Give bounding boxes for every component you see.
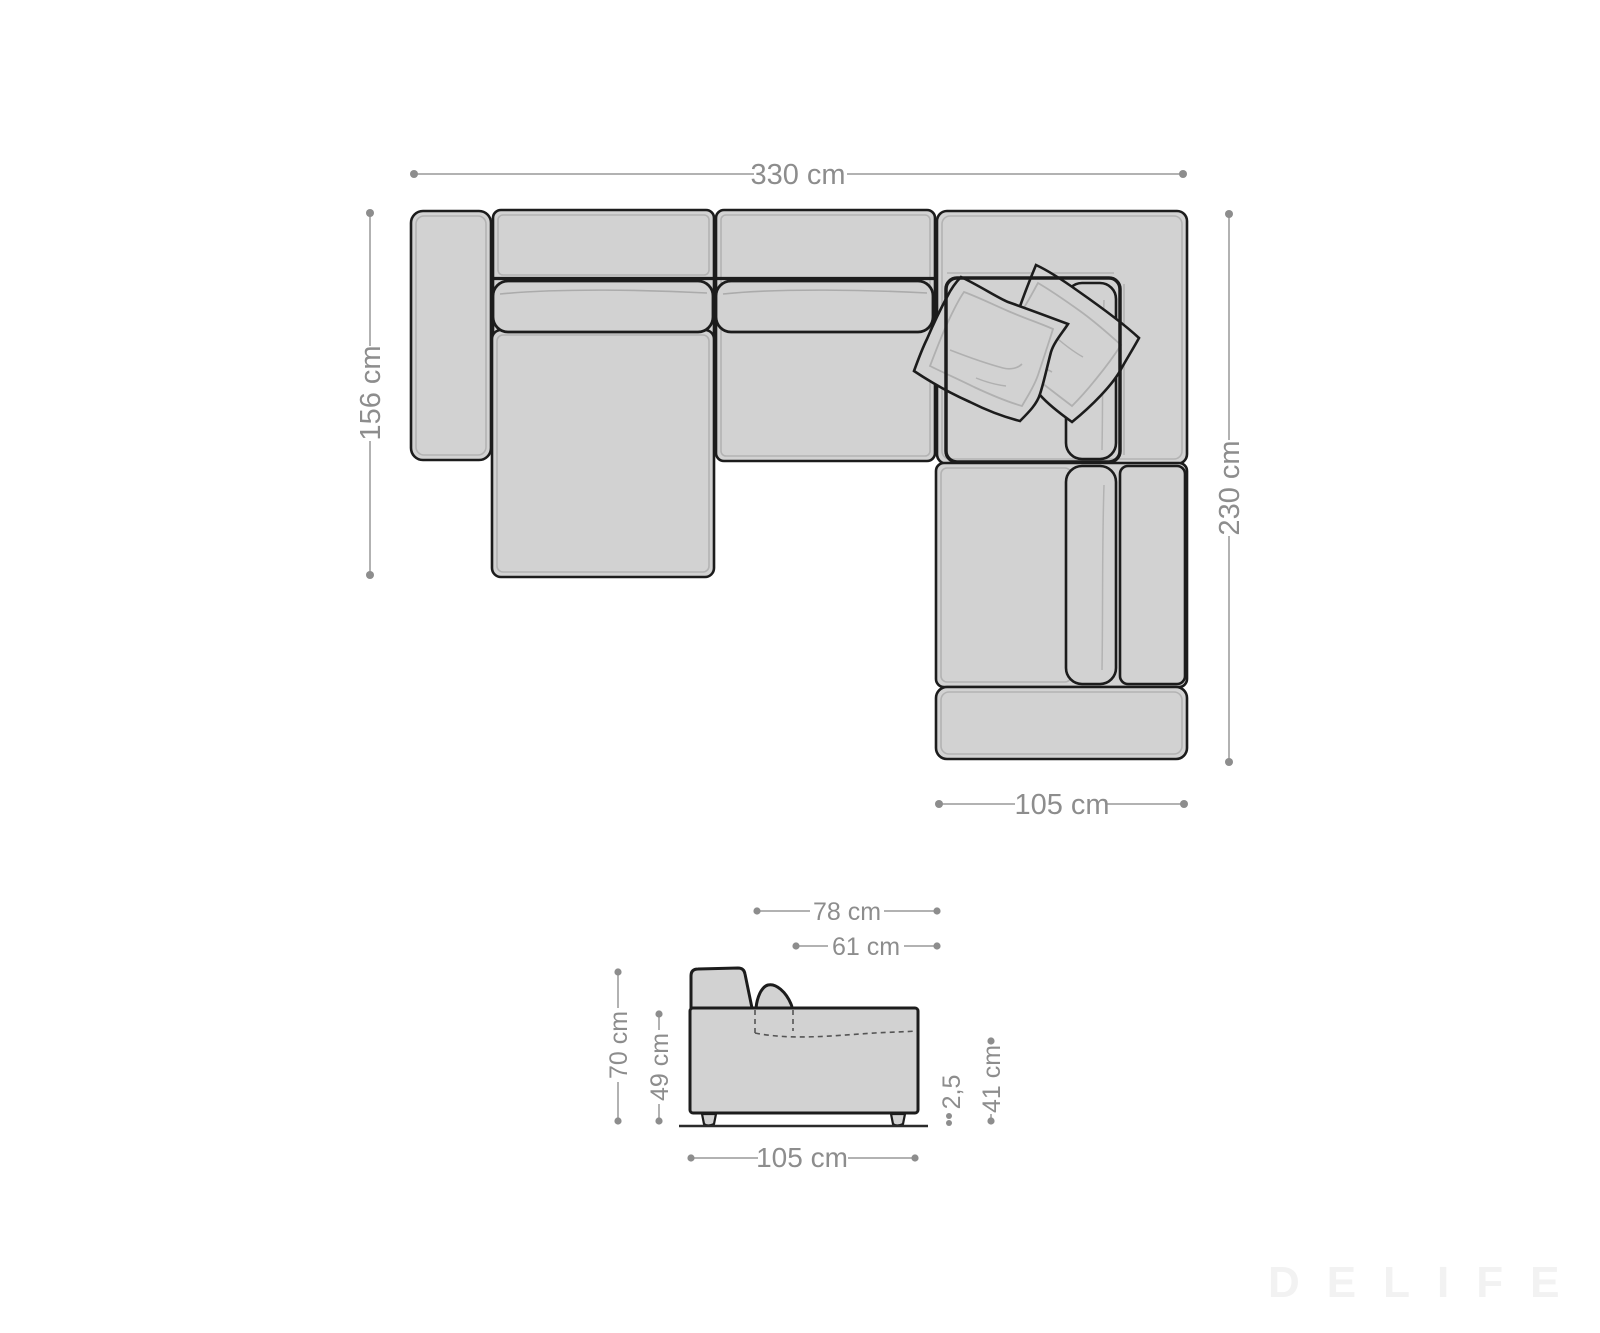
svg-text:70 cm: 70 cm	[605, 1011, 633, 1079]
svg-text:230 cm: 230 cm	[1214, 440, 1246, 535]
svg-text:49 cm: 49 cm	[646, 1033, 674, 1101]
svg-text:330 cm: 330 cm	[750, 159, 845, 191]
svg-text:78 cm: 78 cm	[813, 898, 881, 926]
svg-text:61 cm: 61 cm	[832, 933, 900, 961]
svg-text:105 cm: 105 cm	[756, 1142, 848, 1173]
svg-text:156 cm: 156 cm	[355, 345, 387, 440]
svg-text:DELIFE: DELIFE	[1268, 1258, 1586, 1307]
svg-text:105 cm: 105 cm	[1014, 789, 1109, 821]
svg-text:2,5: 2,5	[938, 1075, 966, 1110]
svg-text:41 cm: 41 cm	[978, 1045, 1006, 1113]
